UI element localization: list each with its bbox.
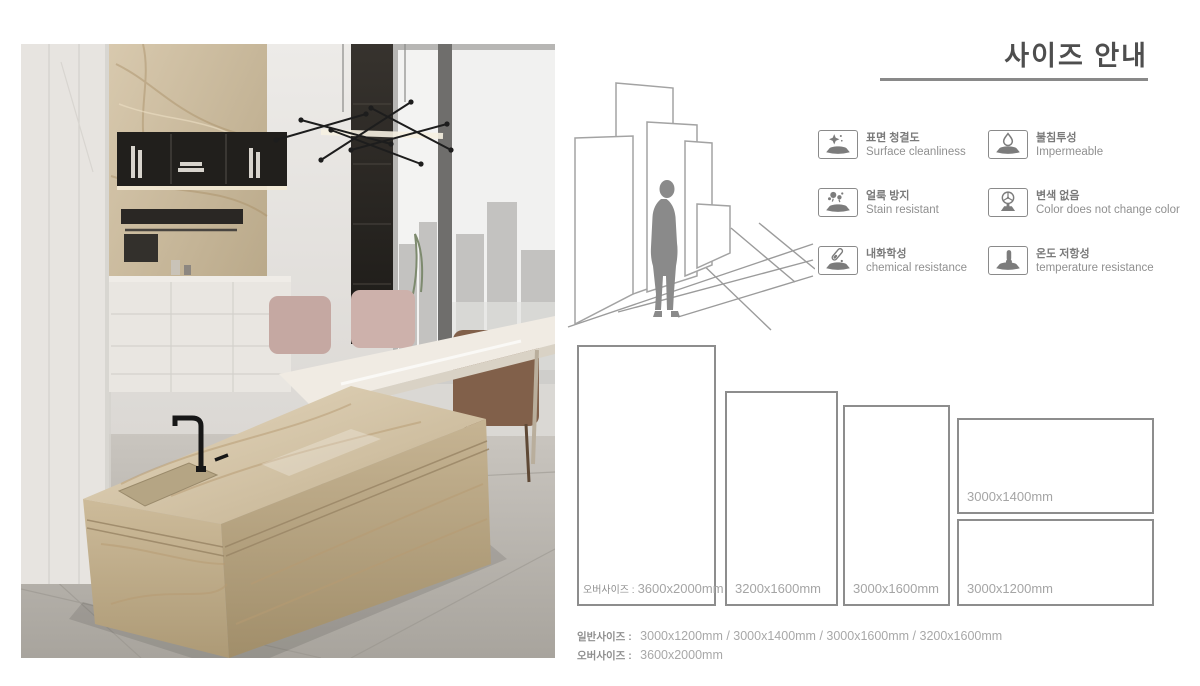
size-box-3000x1400: 3000x1400mm [957, 418, 1154, 514]
size-box-3600x2000: 오버사이즈 :3600x2000mm [577, 345, 716, 606]
feature-ko-label: 불침투성 [1036, 131, 1103, 145]
size-box-3000x1600: 3000x1600mm [843, 405, 950, 606]
feature-en-label: chemical resistance [866, 261, 967, 275]
feature-surface-cleanliness: 표면 청결도 Surface cleanliness [818, 126, 988, 184]
feature-en-label: Impermeable [1036, 145, 1103, 159]
size-value: 3600x2000mm [638, 581, 724, 596]
feature-chemical-resistance: 내화학성 chemical resistance [818, 242, 988, 300]
feature-en-label: Color does not change color [1036, 203, 1180, 217]
over-size-values: 3600x2000mm [640, 648, 723, 662]
black-shelf-unit [117, 132, 287, 190]
page-title: 사이즈 안내 [880, 34, 1148, 73]
normal-size-label: 일반사이즈 : [577, 631, 632, 643]
feature-en-label: temperature resistance [1036, 261, 1154, 275]
size-value: 3000x1400mm [967, 489, 1053, 504]
feature-ko-label: 내화학성 [866, 247, 967, 261]
size-value: 3200x1600mm [735, 581, 821, 596]
size-box-3000x1200: 3000x1200mm [957, 519, 1154, 606]
normal-size-line: 일반사이즈 : 3000x1200mm / 3000x1400mm / 3000… [577, 627, 1002, 646]
title-underline [880, 78, 1148, 81]
size-guide-page: 사이즈 안내 [0, 0, 1200, 686]
slab-scale-diagram [563, 62, 815, 334]
sparkle-clean-icon [818, 130, 858, 159]
feature-ko-label: 온도 저항성 [1036, 247, 1154, 261]
oversize-prefix-label: 오버사이즈 : [583, 585, 635, 596]
slab-scale-art [563, 62, 815, 334]
feature-stain-resistant: 얼룩 방지 Stain resistant [818, 184, 988, 242]
feature-temperature-resistance: 온도 저항성 temperature resistance [988, 242, 1200, 300]
feature-no-discoloration: 변색 없음 Color does not change color [988, 184, 1200, 242]
normal-size-values: 3000x1200mm / 3000x1400mm / 3000x1600mm … [640, 629, 1002, 643]
over-size-label: 오버사이즈 : [577, 650, 632, 662]
size-summary-note: 일반사이즈 : 3000x1200mm / 3000x1400mm / 3000… [577, 627, 1002, 665]
feature-impermeable: 불침투성 Impermeable [988, 126, 1200, 184]
feature-ko-label: 변색 없음 [1036, 189, 1180, 203]
feature-ko-label: 표면 청결도 [866, 131, 966, 145]
size-value: 3000x1600mm [853, 581, 939, 596]
size-box-3200x1600: 3200x1600mm [725, 391, 838, 606]
feature-en-label: Stain resistant [866, 203, 939, 217]
stain-splatter-icon [818, 188, 858, 217]
kitchen-marble-island-photo [21, 44, 555, 658]
size-value: 3000x1200mm [967, 581, 1053, 596]
feature-ko-label: 얼룩 방지 [866, 189, 939, 203]
thermometer-icon [988, 246, 1028, 275]
over-size-line: 오버사이즈 : 3600x2000mm [577, 646, 1002, 665]
feature-grid: 표면 청결도 Surface cleanliness 불침투성 Impermea… [818, 126, 1200, 300]
color-wheel-icon [988, 188, 1028, 217]
feature-en-label: Surface cleanliness [866, 145, 966, 159]
water-drop-icon [988, 130, 1028, 159]
test-tube-icon [818, 246, 858, 275]
kitchen-photo-art [21, 44, 555, 658]
